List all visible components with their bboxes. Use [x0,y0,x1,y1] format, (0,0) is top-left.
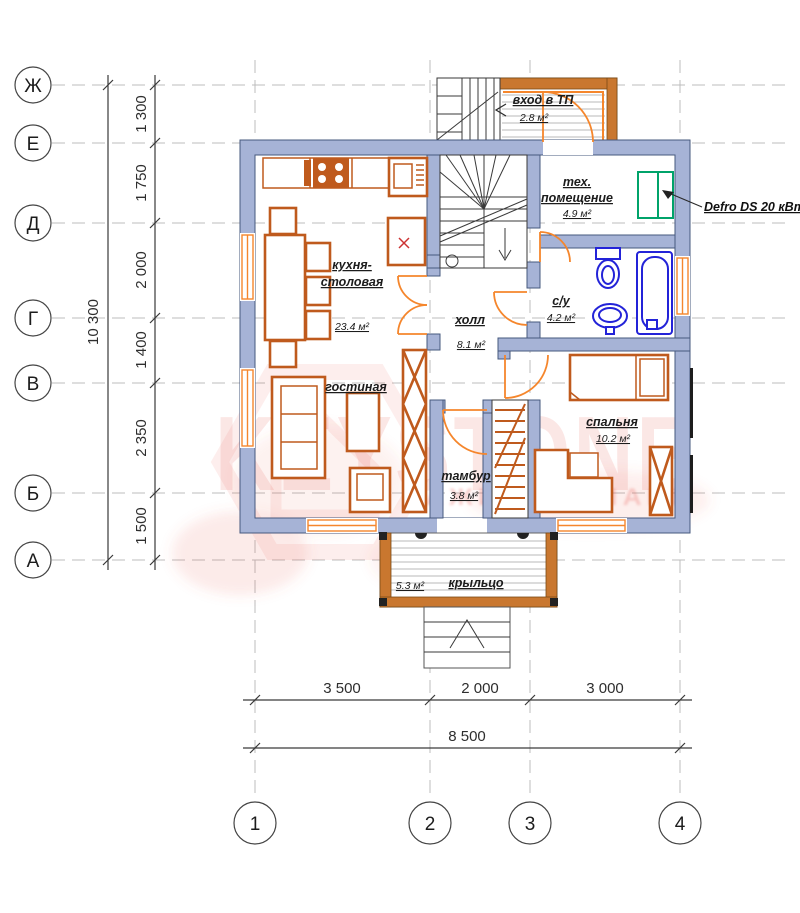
axis-row-d: Д [27,214,40,235]
axis-row-a: А [27,551,40,572]
fridge-symbol [389,158,427,196]
axis-col-2: 2 [425,814,436,835]
room-label-living: гостиная [325,380,387,394]
window-living-left [242,370,253,446]
room-area-bedroom: 10.2 м² [596,433,631,445]
axis-col-1: 1 [250,814,261,835]
dim-v-seg-5: 1 500 [133,507,150,545]
axis-row-zh: Ж [24,76,42,97]
room-area-porch: 5.3 м² [396,580,425,592]
wardrobe-bedroom-symbol [650,447,672,515]
window-kitchen-left [242,235,253,299]
porch-steps [424,607,510,668]
exterior-stair [437,78,500,142]
room-label-bedroom: спальня [586,415,638,429]
bathtub-symbol [637,252,672,334]
dim-v-total: 10 300 [85,299,102,345]
bed-symbol [570,355,668,400]
room-label-kitchen-2: столовая [321,275,384,289]
door-kitchen-double [398,276,427,334]
floor-plan-drawing: KEYSTONE АЖИ З КОМАНИ [0,0,800,913]
boiler-annotation: Defro DS 20 кВт [704,200,800,214]
room-label-kitchen-1: кухня- [332,258,372,272]
dim-h-seg-2: 3 000 [586,680,624,697]
room-label-hall: холл [454,313,485,327]
door-bedroom [505,355,548,398]
room-label-tech-2: помещение [541,191,613,205]
entry-deck [500,78,617,142]
room-area-tech: 4.9 м² [563,208,592,220]
axis-row-e: Е [27,134,40,155]
dim-v-seg-0: 1 300 [133,95,150,133]
row-axis-bubbles: Ж Е Д Г В Б А [15,67,51,578]
room-label-tech-1: тех. [563,175,591,189]
toilet-symbol [596,248,620,288]
axis-col-4: 4 [675,814,686,835]
kitchen-counter-symbol [263,158,427,196]
dim-h-total: 8 500 [448,728,486,745]
window-living-bottom [308,520,376,531]
dim-h-seg-0: 3 500 [323,680,361,697]
window-bath-right [677,258,688,314]
room-area-kitchen: 23.4 м² [334,321,370,333]
dim-v-seg-2: 2 000 [133,251,150,289]
room-label-porch: крыльцо [448,576,503,590]
sofa-symbol [272,377,325,478]
kitchen-cabinet-symbol [388,218,425,265]
axis-row-g: Г [28,309,38,330]
door-bath [494,292,527,325]
column-axis-bubbles: 1 2 3 4 [234,802,701,844]
room-area-bath: 4.2 м² [547,312,576,324]
stove-symbol [313,158,349,188]
room-area-tambour: 3.8 м² [450,490,479,502]
sink-symbol [593,304,627,334]
axis-row-b: Б [27,484,39,505]
room-label-tambour: тамбур [441,469,491,483]
dim-v-seg-1: 1 750 [133,164,150,202]
axis-col-3: 3 [525,814,536,835]
armchair-symbol [350,468,390,512]
ladder-storage-symbol [492,400,528,518]
horizontal-dimensions: 3 500 2 000 3 000 8 500 [243,680,692,753]
vertical-dimensions: 10 300 1 300 1 750 2 000 1 400 2 350 1 5… [85,75,160,570]
dim-h-seg-1: 2 000 [461,680,499,697]
room-label-entry-tp: вход в ТП [513,93,575,107]
axis-row-v: В [27,374,40,395]
room-area-hall: 8.1 м² [457,339,486,351]
dim-v-seg-3: 1 400 [133,331,150,369]
window-bedroom-bottom [558,520,625,531]
porch [379,532,558,607]
floor-plan-page: KEYSTONE АЖИ З КОМАНИ [0,0,800,913]
coffee-table-symbol [347,393,379,451]
dim-v-seg-4: 2 350 [133,419,150,457]
room-area-entry-tp: 2.8 м² [519,112,549,124]
wardrobe-hall-symbol [403,350,426,512]
room-label-bath: с/у [552,294,570,308]
interior-stair [440,155,527,268]
